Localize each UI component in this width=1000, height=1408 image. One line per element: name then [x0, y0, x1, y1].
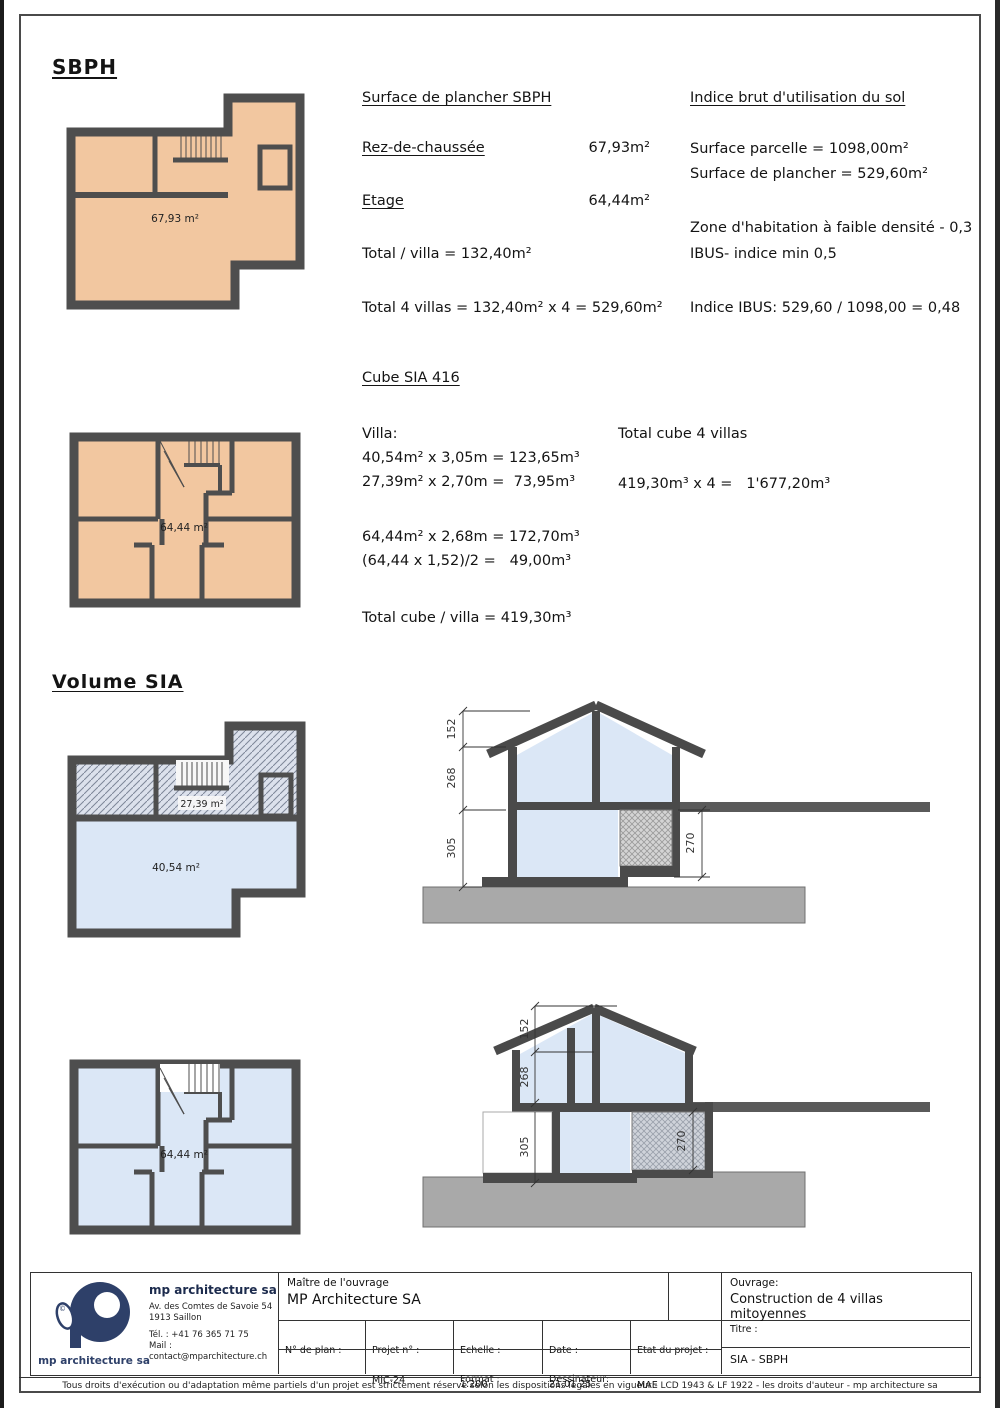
indice-line3: Zone d'habitation à faible densité - 0,3	[690, 220, 972, 237]
ouvrage-value: Construction de 4 villas mitoyennes	[730, 1292, 962, 1322]
copyright-line: Tous droits d'exécution ou d'adaptation …	[19, 1377, 981, 1393]
scan-edge-left	[0, 0, 4, 1408]
dim-152-label: 152	[445, 719, 458, 740]
cube-total4-title: Total cube 4 villas	[618, 426, 747, 443]
mp-architecture-logo-icon: ©	[43, 1278, 143, 1354]
projet-value-cell: MIC-24	[366, 1349, 454, 1374]
floor-plan-volume-sia: 27,39 m² 40,54 m²	[66, 720, 306, 940]
sbph-title: SBPH	[52, 56, 117, 79]
dim-268-label: 268	[518, 1067, 531, 1088]
dim-152-label: 152	[518, 1019, 531, 1040]
maitre-label: Maître de l'ouvrage	[287, 1277, 660, 1289]
building-section-1: 152 268 305 270	[422, 698, 934, 928]
indice-result: Indice IBUS: 529,60 / 1098,00 = 0,48	[690, 300, 960, 317]
cube-villa-label: Villa:	[362, 426, 397, 443]
company-info: mp architecture sa Av. des Comtes de Sav…	[149, 1283, 278, 1362]
dim-305-label: 305	[445, 838, 458, 859]
etage-area-label: 64,44 m²	[160, 522, 208, 534]
company-address2: 1913 Saillon	[149, 1313, 278, 1324]
cube-line4: (64,44 x 1,52)/2 = 49,00m³	[362, 553, 571, 570]
plan-no-value-cell	[279, 1349, 366, 1374]
cube-line2: 27,39m² x 2,70m = 73,95m³	[362, 474, 575, 491]
surface-row-label: Rez-de-chaussée	[362, 140, 485, 157]
dim-270-label: 270	[675, 1131, 688, 1152]
titre-label-cell: Titre :	[722, 1321, 970, 1348]
etage-sia-area-label: 64,44 m²	[160, 1149, 208, 1161]
indice-line4: IBUS- indice min 0,5	[690, 246, 837, 263]
cube-total4-line: 419,30m³ x 4 = 1'677,20m³	[618, 476, 830, 493]
surface-row-label: Etage	[362, 193, 404, 210]
company-address1: Av. des Comtes de Savoie 54	[149, 1302, 278, 1313]
scan-edge-right	[995, 0, 1000, 1408]
etat-value-cell: MAE	[631, 1349, 721, 1374]
cube-line3: 64,44m² x 2,68m = 172,70m³	[362, 529, 580, 546]
ouvrage-label: Ouvrage:	[730, 1277, 962, 1289]
company-mail: Mail : contact@mparchitecture.ch	[149, 1341, 278, 1362]
dessinateur-cell: Dessinateur: —	[543, 1349, 631, 1374]
dim-270-label: 270	[684, 833, 697, 854]
surface-title: Surface de plancher SBPH	[362, 90, 551, 107]
maitre-ouvrage-cell: Maître de l'ouvrage MP Architecture SA	[279, 1273, 669, 1321]
surface-row-value: 67,93m²	[589, 140, 650, 157]
ground-mass	[423, 887, 805, 923]
titre-label: Titre :	[730, 1324, 758, 1335]
etat-cell: Etat du projet :	[631, 1321, 721, 1349]
cube-total: Total cube / villa = 419,30m³	[362, 610, 571, 627]
rdc-area-label: 67,93 m²	[151, 213, 199, 225]
volume-sia-title: Volume SIA	[52, 672, 184, 694]
title-block-right-column: Ouvrage: Construction de 4 villas mitoye…	[721, 1273, 970, 1374]
surface-row-etage: Etage 64,44m²	[362, 193, 650, 210]
floor-plan-rdc: 67,93 m²	[65, 92, 305, 312]
ouvrage-cell: Ouvrage: Construction de 4 villas mitoye…	[722, 1273, 970, 1321]
title-block: © mp architecture sa mp architecture sa …	[30, 1272, 972, 1376]
format-cell: Format : A4 210 / 297 mm	[454, 1349, 543, 1374]
plan-no-cell: N° de plan :	[279, 1321, 366, 1349]
dim-305-label: 305	[518, 1137, 531, 1158]
indice-line2: Surface de plancher = 529,60m²	[690, 166, 928, 183]
floor-plan-etage: 64,44 m²	[68, 431, 302, 609]
surface-total-villa: Total / villa = 132,40m²	[362, 246, 532, 263]
surface-row-value: 64,44m²	[589, 193, 650, 210]
maitre-value: MP Architecture SA	[287, 1292, 660, 1308]
echelle-cell: Echelle : 1:200	[454, 1321, 543, 1349]
building-section-2: 152 268 305 270	[422, 993, 934, 1231]
company-name: mp architecture sa	[149, 1283, 278, 1298]
indice-line1: Surface parcelle = 1098,00m²	[690, 141, 909, 158]
indice-title: Indice brut d'utilisation du sol	[690, 90, 905, 107]
company-phone: Tél. : +41 76 365 71 75	[149, 1330, 278, 1341]
projet-cell: Projet n° :	[366, 1321, 454, 1349]
title-block-logo-cell: © mp architecture sa mp architecture sa …	[31, 1273, 279, 1374]
sia-upper-area-label: 27,39 m²	[180, 799, 223, 810]
sia-lower-area-label: 40,54 m²	[152, 862, 200, 874]
cube-line1: 40,54m² x 3,05m = 123,65m³	[362, 450, 580, 467]
titre-value-cell: SIA - SBPH	[722, 1348, 970, 1374]
logo-caption: mp architecture sa	[35, 1355, 153, 1367]
surface-row-rdc: Rez-de-chaussée 67,93m²	[362, 140, 650, 157]
empty-cell	[669, 1273, 721, 1321]
logo-copyright-mark: ©	[59, 1305, 66, 1313]
titre-value: SIA - SBPH	[730, 1353, 788, 1366]
dim-268-label: 268	[445, 768, 458, 789]
floor-plan-etage-sia: 64,44 m²	[68, 1058, 302, 1236]
cube-title: Cube SIA 416	[362, 370, 460, 387]
surface-total-4-villas: Total 4 villas = 132,40m² x 4 = 529,60m²	[362, 300, 663, 317]
plan-sheet: SBPH Volume SIA Surface de plancher SBPH…	[0, 0, 1000, 1408]
title-block-fields: N° de plan : Projet n° : Echelle : 1:200…	[279, 1321, 721, 1374]
date-cell: Date : 21.01.25	[543, 1321, 631, 1349]
